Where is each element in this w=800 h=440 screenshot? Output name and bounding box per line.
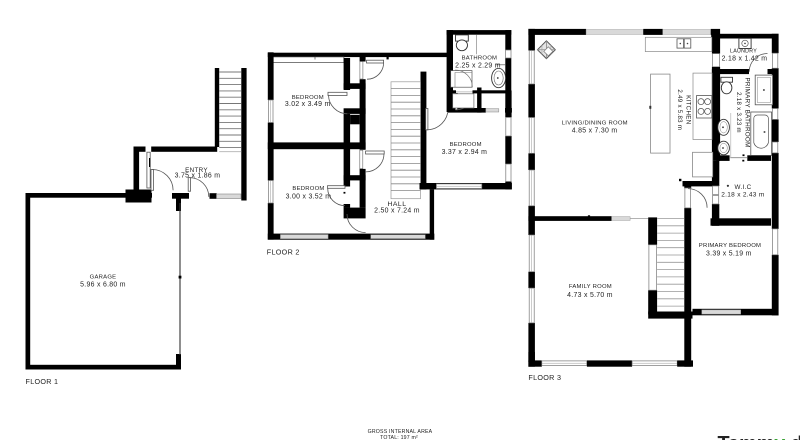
- svg-text:BEDROOM: BEDROOM: [450, 142, 482, 148]
- svg-text:2.18 x 2.43 m: 2.18 x 2.43 m: [721, 191, 764, 198]
- svg-text:PRIMARY BATHROOM: PRIMARY BATHROOM: [744, 77, 751, 147]
- svg-text:FLOOR 2: FLOOR 2: [267, 247, 300, 256]
- svg-text:4.85 x 7.30 m: 4.85 x 7.30 m: [572, 128, 618, 135]
- svg-text:BATHROOM: BATHROOM: [462, 56, 498, 62]
- svg-text:LIVING/DINING ROOM: LIVING/DINING ROOM: [562, 120, 628, 126]
- svg-text:FAMILY ROOM: FAMILY ROOM: [569, 284, 612, 290]
- svg-text:FLOOR 1: FLOOR 1: [26, 377, 59, 386]
- svg-text:3.75 x 1.86 m: 3.75 x 1.86 m: [175, 173, 221, 180]
- svg-text:2.50 x 7.24 m: 2.50 x 7.24 m: [374, 208, 420, 215]
- svg-text:3.37 x 2.94 m: 3.37 x 2.94 m: [442, 149, 488, 156]
- svg-text:2.49 x 5.83 m: 2.49 x 5.83 m: [676, 89, 683, 130]
- svg-text:KITCHEN: KITCHEN: [684, 95, 691, 125]
- svg-text:TOTAL: 197 m²: TOTAL: 197 m²: [380, 435, 418, 440]
- svg-text:W.I.C: W.I.C: [735, 184, 752, 191]
- svg-text:BEDROOM: BEDROOM: [292, 186, 324, 192]
- svg-text:Tammy da: Tammy da: [718, 433, 800, 440]
- svg-text:4.73 x 5.70 m: 4.73 x 5.70 m: [567, 292, 613, 299]
- svg-text:FLOOR 3: FLOOR 3: [528, 373, 561, 382]
- svg-text:2.18 x 3.23 m: 2.18 x 3.23 m: [735, 92, 742, 133]
- svg-text:GARAGE: GARAGE: [90, 274, 117, 280]
- svg-text:2.18 x 1.42 m: 2.18 x 1.42 m: [722, 56, 768, 63]
- svg-text:LAUNDRY: LAUNDRY: [730, 49, 757, 55]
- svg-text:3.39 x 5.19 m: 3.39 x 5.19 m: [706, 250, 752, 257]
- svg-text:2.25 x 2.29 m: 2.25 x 2.29 m: [455, 63, 501, 70]
- svg-text:3.00 x 3.52 m: 3.00 x 3.52 m: [286, 194, 332, 201]
- svg-text:3.02 x 3.49 m: 3.02 x 3.49 m: [285, 101, 331, 108]
- svg-text:PRIMARY BEDROOM: PRIMARY BEDROOM: [699, 243, 761, 249]
- svg-text:5.96 x 6.80 m: 5.96 x 6.80 m: [80, 281, 126, 288]
